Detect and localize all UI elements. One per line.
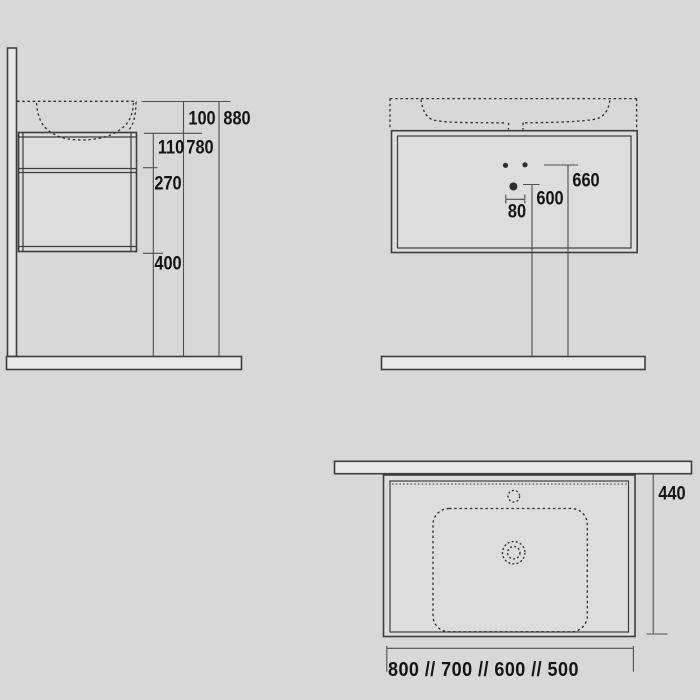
drain-hole bbox=[509, 183, 517, 191]
plan-wall bbox=[335, 461, 692, 473]
dim-label-hole-spacing: 80 bbox=[508, 203, 526, 222]
dim-label-depth: 440 bbox=[658, 485, 685, 504]
dim-label-width-options: 800 // 700 // 600 // 500 bbox=[388, 660, 579, 680]
side-view bbox=[7, 48, 242, 370]
plan-basin bbox=[384, 475, 636, 637]
side-wall bbox=[8, 48, 17, 357]
front-cabinet bbox=[392, 131, 638, 253]
dim-label-drain-height: 600 bbox=[536, 190, 563, 209]
fixing-hole-left bbox=[503, 163, 508, 168]
dim-label-worktop-height: 780 bbox=[187, 138, 214, 157]
fixing-hole-right bbox=[522, 162, 527, 167]
dim-label-total-height: 880 bbox=[223, 109, 250, 128]
front-view bbox=[382, 99, 646, 370]
dim-label-drawer-height: 110 bbox=[157, 138, 183, 157]
plan-view bbox=[335, 461, 692, 671]
dim-label-hole-height: 660 bbox=[572, 172, 599, 191]
side-floor bbox=[7, 357, 242, 370]
technical-drawing-canvas: 100 880 110 780 270 400 660 600 80 440 8… bbox=[0, 0, 700, 700]
dim-label-floor-clearance: 400 bbox=[154, 255, 181, 274]
front-floor bbox=[382, 357, 646, 370]
dim-label-lower-section: 270 bbox=[155, 174, 182, 193]
front-basin-dashed-outline bbox=[390, 99, 637, 130]
drawing-linework bbox=[0, 0, 700, 700]
dim-label-basin-height: 100 bbox=[188, 109, 215, 128]
side-cabinet bbox=[19, 133, 137, 252]
